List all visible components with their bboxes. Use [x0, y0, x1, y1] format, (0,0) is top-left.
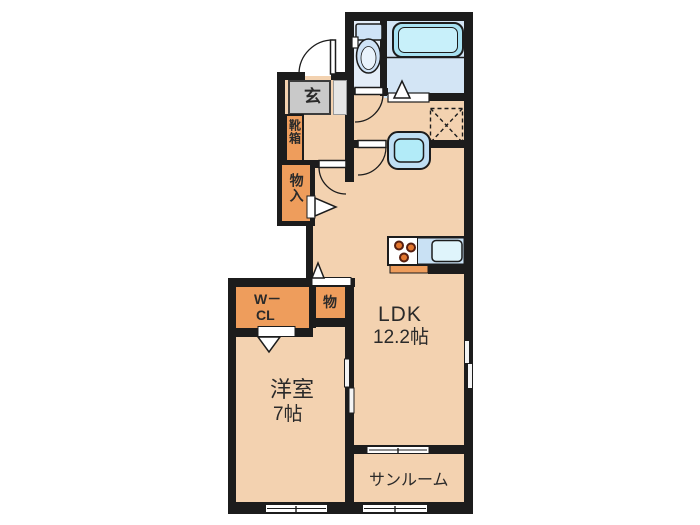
hall-storage-label: 物入: [288, 173, 304, 203]
sunroom-opening: [367, 447, 429, 454]
ldk-label: LDK: [378, 303, 422, 327]
wcl-label-line2: CL: [256, 308, 275, 324]
washroom-door: [358, 141, 386, 176]
entrance-label: 玄: [304, 87, 321, 106]
wcl-triangle-icon: [258, 337, 280, 352]
sliding-door: [345, 359, 355, 413]
bath-door-triangle-icon: [394, 81, 410, 98]
washing-machine-area-icon: [431, 109, 463, 143]
shoe-cabinet-label: 靴箱: [287, 119, 300, 145]
ldk-size-label: 12.2帖: [373, 327, 429, 348]
wcl-opening: [258, 327, 295, 337]
entrance-door: [299, 40, 336, 74]
window: [465, 341, 473, 389]
bathtub-icon: [387, 23, 464, 58]
toilet-door: [355, 88, 383, 123]
kitchen-sink-icon: [432, 241, 462, 262]
hall-door: [319, 161, 346, 195]
wcl-label-line1: W－: [254, 292, 281, 308]
fixtures-layer: [0, 0, 700, 525]
western-room-size-label: 7帖: [273, 404, 303, 425]
washbasin-icon: [388, 132, 430, 169]
storage-label: 物: [323, 295, 337, 311]
storage-triangle-icon: [312, 263, 324, 278]
floor-plan: 玄 靴箱 物入 物 W－ CL LDK 12.2帖 洋室 7帖 サンルーム: [0, 0, 700, 525]
sunroom-label: サンルーム: [369, 472, 449, 490]
toilet-icon: [352, 24, 382, 73]
window: [266, 505, 328, 513]
western-room-label: 洋室: [270, 378, 314, 403]
hall-storage-opening: [307, 196, 315, 218]
window: [363, 505, 428, 513]
kitchen-counter: [388, 237, 465, 274]
counter-base: [390, 265, 428, 273]
hall-storage-triangle-icon: [315, 198, 336, 216]
counter-wall: [428, 265, 465, 274]
